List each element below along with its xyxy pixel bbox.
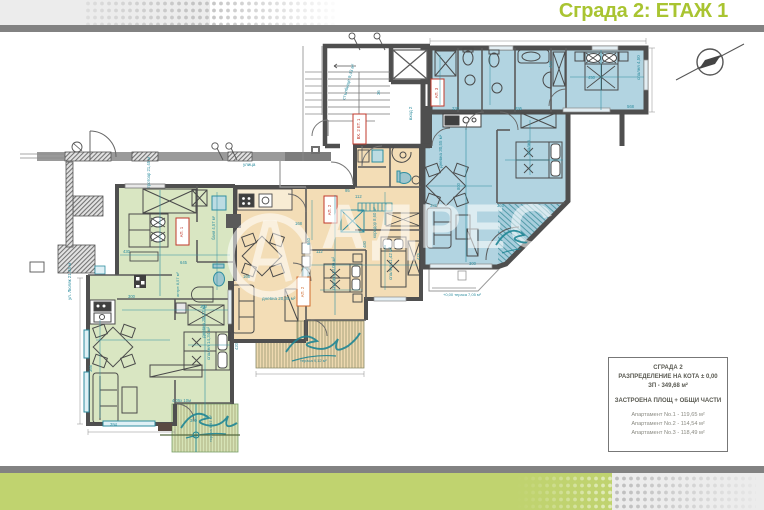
svg-text:420: 420 — [234, 342, 239, 350]
svg-text:645: 645 — [180, 260, 188, 265]
svg-text:330: 330 — [452, 106, 460, 111]
svg-text:дневна 30,55 м²: дневна 30,55 м² — [438, 134, 443, 168]
svg-text:360: 360 — [497, 203, 505, 208]
svg-text:300: 300 — [200, 304, 208, 309]
svg-text:ВХ. 2 ЕТ. 1: ВХ. 2 ЕТ. 1 — [356, 118, 361, 139]
svg-text:вход 2: вход 2 — [408, 106, 413, 120]
svg-text:475: 475 — [416, 252, 421, 260]
svg-text:антре 8,57 м²: антре 8,57 м² — [175, 272, 180, 297]
svg-text:640: 640 — [306, 237, 311, 245]
svg-text:480: 480 — [362, 240, 367, 248]
svg-text:295: 295 — [515, 106, 523, 111]
svg-text:АП. 3: АП. 3 — [434, 87, 439, 98]
svg-text:36: 36 — [376, 90, 381, 95]
svg-text:АП. 1: АП. 1 — [179, 226, 184, 237]
svg-text:АДРЕС: АДРЕС — [321, 192, 554, 262]
svg-text:420: 420 — [548, 60, 553, 68]
svg-text:спалня 11,42 м²: спалня 11,42 м² — [388, 247, 393, 280]
svg-text:450: 450 — [588, 75, 596, 80]
svg-text:300: 300 — [190, 418, 198, 423]
svg-text:388: 388 — [430, 203, 438, 208]
svg-text:4,05х 10м: 4,05х 10м — [172, 398, 191, 403]
svg-text:300: 300 — [128, 294, 136, 299]
svg-text:коридор 8,60 м²: коридор 8,60 м² — [372, 207, 377, 238]
svg-text:568: 568 — [627, 104, 635, 109]
svg-text:тераса 9,12 м²: тераса 9,12 м² — [300, 358, 327, 363]
svg-text:800: 800 — [456, 182, 461, 190]
svg-text:112: 112 — [355, 194, 362, 199]
svg-text:спалня 4,50: спалня 4,50 — [636, 55, 641, 80]
svg-text:тротоар 21,45 м: тротоар 21,45 м — [146, 157, 151, 188]
svg-text:АП. 2: АП. 2 — [300, 286, 305, 297]
svg-text:спалня 14,34 м²: спалня 14,34 м² — [206, 326, 211, 360]
svg-text:112: 112 — [316, 249, 323, 254]
svg-text:ул. Люляк 21,45 м: ул. Люляк 21,45 м — [67, 263, 72, 300]
svg-text:95: 95 — [345, 188, 350, 193]
svg-text:300: 300 — [469, 261, 477, 266]
svg-text:430: 430 — [123, 249, 131, 254]
svg-text:тераса 6,47 м²: тераса 6,47 м² — [208, 415, 213, 442]
svg-text:168: 168 — [295, 221, 303, 226]
svg-text:дневна 20,05 м²: дневна 20,05 м² — [262, 296, 296, 301]
svg-text:спалня 13,00 м²: спалня 13,00 м² — [331, 256, 336, 290]
svg-text:баня 4,57 м²: баня 4,57 м² — [211, 215, 216, 240]
svg-text:+0,00 тераса 7,05 м²: +0,00 тераса 7,05 м² — [443, 292, 482, 297]
svg-text:366: 366 — [88, 364, 93, 372]
svg-text:166: 166 — [243, 274, 251, 279]
svg-text:394: 394 — [110, 422, 118, 427]
svg-text:улица: улица — [243, 162, 256, 167]
